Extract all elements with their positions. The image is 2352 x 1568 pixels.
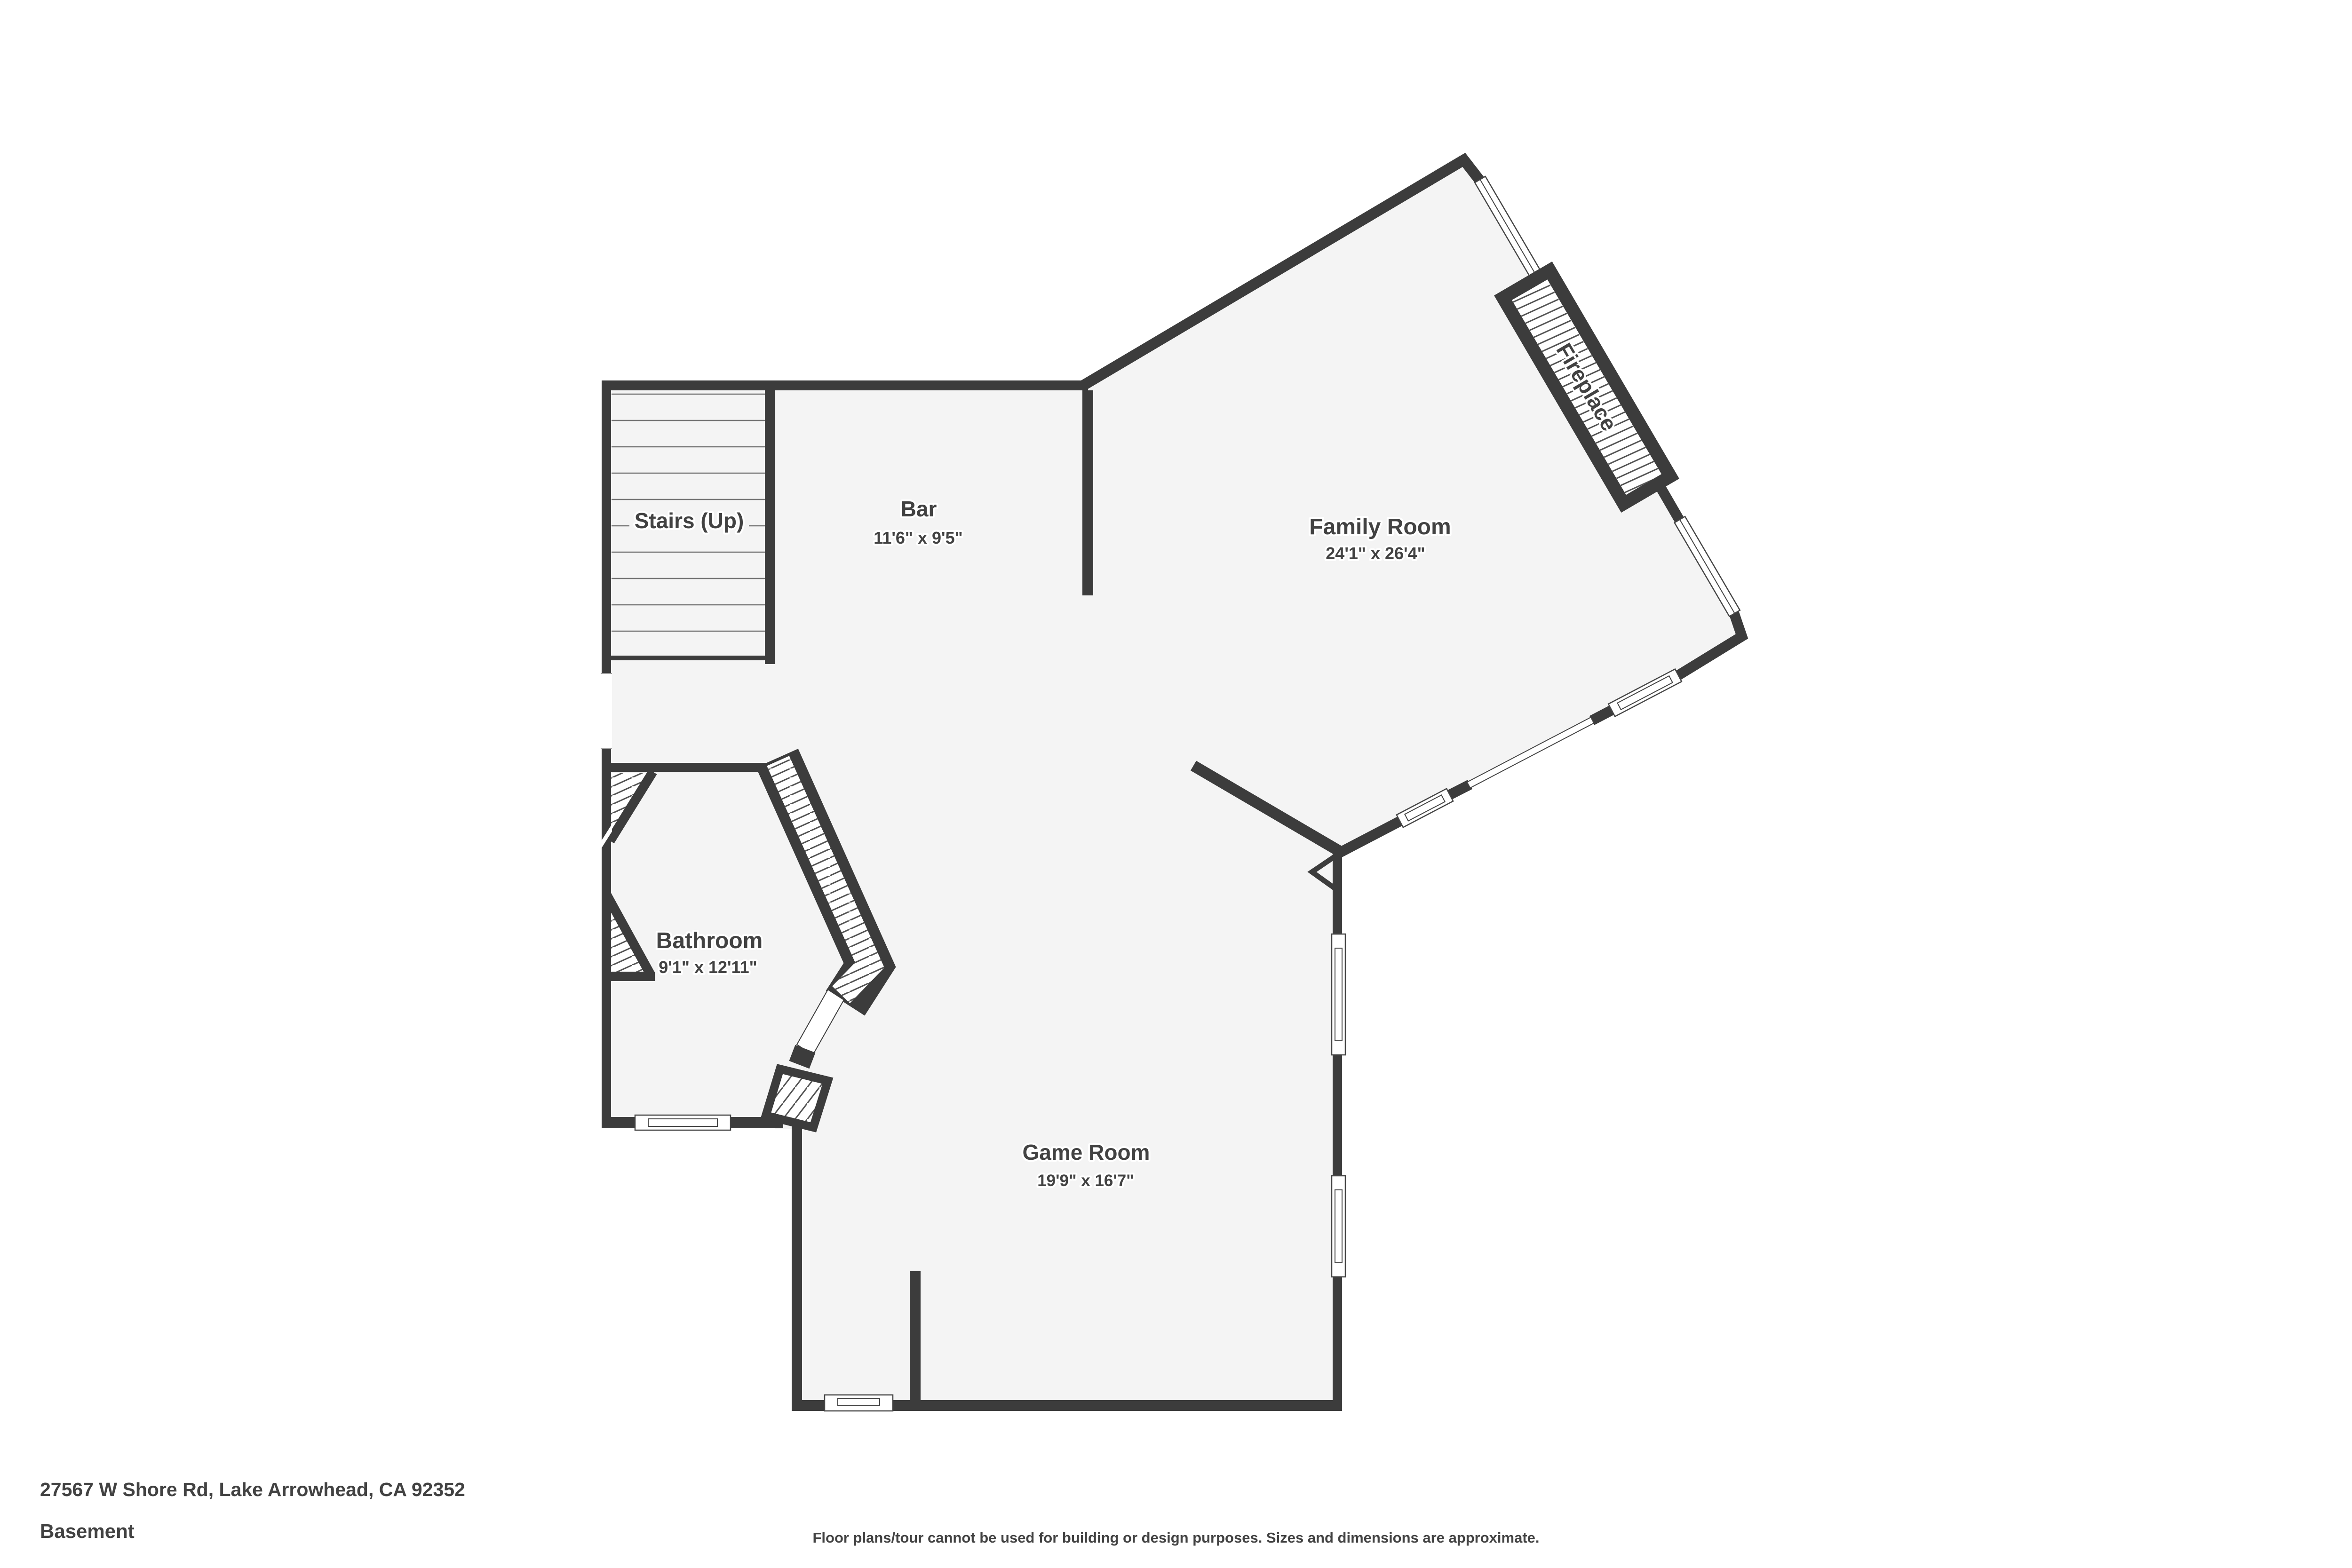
svg-text:Bathroom: Bathroom (656, 928, 763, 953)
svg-text:27567 W Shore Rd, Lake Arrowhe: 27567 W Shore Rd, Lake Arrowhead, CA 923… (40, 1479, 465, 1500)
svg-text:Bar: Bar (901, 497, 937, 521)
svg-text:24'1" x 26'4": 24'1" x 26'4" (1326, 544, 1425, 563)
svg-text:Stairs (Up): Stairs (Up) (635, 508, 744, 533)
svg-text:Basement: Basement (40, 1520, 135, 1542)
svg-text:19'9" x 16'7": 19'9" x 16'7" (1037, 1172, 1134, 1190)
svg-text:Floor plans/tour cannot be use: Floor plans/tour cannot be used for buil… (812, 1529, 1539, 1546)
svg-text:9'1" x 12'11": 9'1" x 12'11" (659, 958, 757, 977)
svg-text:Game Room: Game Room (1023, 1140, 1150, 1164)
svg-text:11'6" x 9'5": 11'6" x 9'5" (874, 528, 962, 547)
svg-text:Family Room: Family Room (1309, 515, 1451, 539)
